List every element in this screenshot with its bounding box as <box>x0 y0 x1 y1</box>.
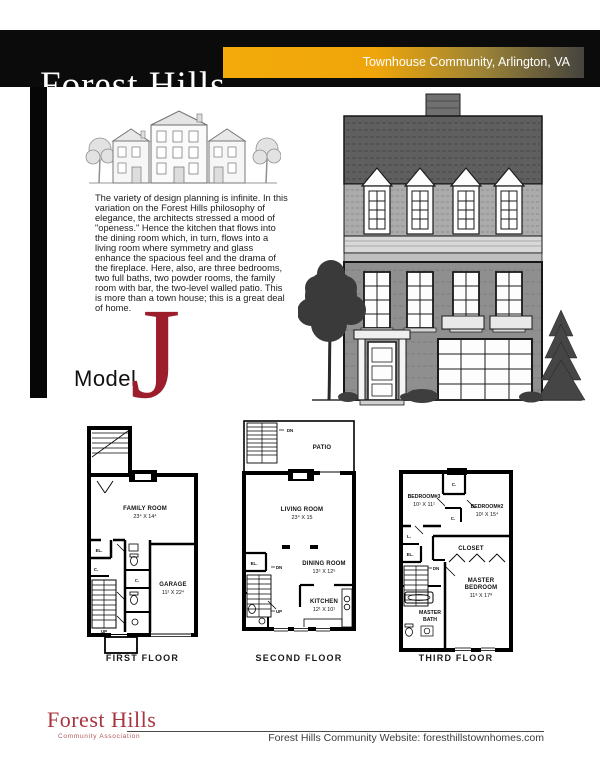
dn-label-3: DN <box>433 566 439 571</box>
up-label: UP <box>101 629 107 634</box>
dining-room-dim: 13⁵ X 12⁵ <box>312 569 335 575</box>
bedroom2-label: BEDROOM#2 <box>471 504 504 510</box>
third-floor-plan: C. C. BEDROOM#3 10¹ X 11¹ BEDROOM#2 10¹ … <box>397 466 515 658</box>
family-room-dim: 23⁴ X 14⁴ <box>133 514 157 520</box>
family-room-label: FAMILY ROOM <box>123 506 167 512</box>
streetscape-etching-illustration <box>85 101 281 193</box>
right-evergreen-icon <box>537 310 585 400</box>
plan1-fireplace <box>129 470 157 482</box>
second-floor-caption: SECOND FLOOR <box>240 653 358 663</box>
etching-right-house <box>209 129 245 183</box>
footer-website-text: Forest Hills Community Website: foresthi… <box>268 732 544 744</box>
footer-logo-subtitle: Community Association <box>58 733 140 740</box>
etching-right-tree-icon <box>253 138 281 183</box>
kitchen-label: KITCHEN <box>310 599 338 605</box>
dn-label-2: DN <box>276 565 282 570</box>
community-banner-text: Townhouse Community, Arlington, VA <box>363 55 570 69</box>
garage-dim: 11² X 22⁴ <box>162 590 185 596</box>
plan1-garage-door <box>151 632 191 639</box>
master-bath-label-1: MASTER <box>419 610 441 616</box>
elevator-label-2: EL. <box>251 561 258 566</box>
dn-label-1: DN <box>287 428 293 433</box>
left-black-strip <box>30 87 47 398</box>
living-room-dim: 23⁴ X 15 <box>292 515 313 521</box>
bedroom2-dim: 10¹ X 15⁴ <box>476 512 499 518</box>
kitchen-dim: 12¹ X 10¹ <box>313 607 335 613</box>
bedroom3-label: BEDROOM#3 <box>408 494 441 500</box>
closet-label-1: C. <box>94 567 98 572</box>
front-door <box>354 330 410 405</box>
elevator-label-3: EL. <box>407 552 414 557</box>
second-floor-plan: DN PATIO LIVING ROOM 23⁴ X 15 EL. DN DIN… <box>240 417 358 655</box>
community-banner: Townhouse Community, Arlington, VA <box>223 47 584 78</box>
bedroom3-dim: 10¹ X 11¹ <box>413 502 435 508</box>
plan2-bottom-windows <box>274 627 330 634</box>
master-bedroom-label-1: MASTER <box>468 578 495 584</box>
etching-center-house <box>151 111 207 183</box>
linen-label: L. <box>407 534 411 539</box>
up-label-2: UP <box>276 609 282 614</box>
footer-logo-title: Forest Hills <box>47 707 156 733</box>
siding-band <box>344 236 542 262</box>
dining-room-label: DINING ROOM <box>302 561 346 567</box>
living-room-label: LIVING ROOM <box>281 507 324 513</box>
master-bath-label-2: BATH <box>423 617 437 623</box>
closet-label-mid: C. <box>451 516 455 521</box>
plan2-stairs-up <box>247 575 271 617</box>
etching-left-house <box>113 129 149 183</box>
brochure-page: Forest Hills Townhouse Community, Arling… <box>0 0 600 771</box>
model-label: Model <box>74 366 136 392</box>
plan3-chimney <box>447 468 467 475</box>
garage-label: GARAGE <box>159 582 187 588</box>
elevator-label: EL. <box>96 548 103 553</box>
first-floor-plan: FAMILY ROOM 23⁴ X 14⁴ EL. C. C. <box>85 424 200 662</box>
chimney <box>426 94 460 116</box>
townhouse-elevation-illustration <box>298 86 590 416</box>
closet-room-label: CLOSET <box>458 546 484 552</box>
third-floor-caption: THIRD FLOOR <box>397 653 515 663</box>
master-bedroom-label-2: BEDROOM <box>465 585 498 591</box>
etching-left-tree-icon <box>86 138 115 183</box>
first-floor-caption: FIRST FLOOR <box>85 653 200 663</box>
closet-label-2: C. <box>135 578 139 583</box>
plan1-stairs-up <box>92 580 116 628</box>
master-bedroom-dim: 11⁸ X 17⁸ <box>470 593 493 599</box>
closet-label-top: C. <box>452 482 456 487</box>
plan2-patio-stairs <box>247 423 277 463</box>
intro-paragraph: The variety of design planning is infini… <box>95 193 291 313</box>
model-letter: J <box>130 289 181 419</box>
patio-label: PATIO <box>313 445 332 451</box>
